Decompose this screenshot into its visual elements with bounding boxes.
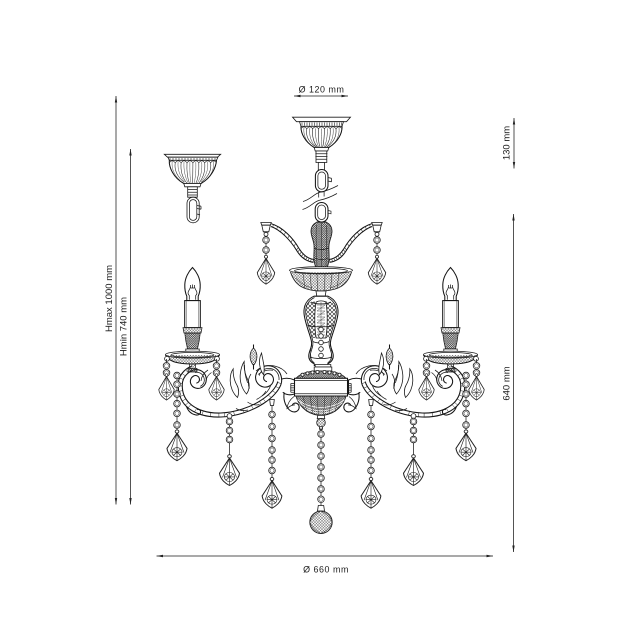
svg-text:640 mm: 640 mm [502,366,513,400]
svg-text:Hmin 740 mm: Hmin 740 mm [119,297,130,356]
svg-text:Ø 660 mm: Ø 660 mm [303,565,349,575]
svg-text:130 mm: 130 mm [502,126,513,160]
svg-text:Ø 120 mm: Ø 120 mm [299,85,345,95]
svg-text:Hmax 1000 mm: Hmax 1000 mm [104,265,115,332]
